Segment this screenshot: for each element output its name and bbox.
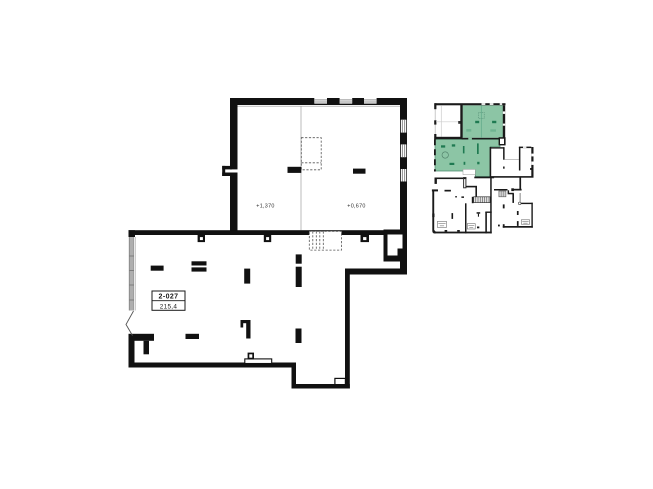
svg-text:2-027: 2-027 bbox=[159, 294, 179, 301]
svg-text:+1,370: +1,370 bbox=[256, 204, 274, 210]
svg-text:+0,670: +0,670 bbox=[347, 204, 365, 210]
svg-text:215,4: 215,4 bbox=[160, 303, 178, 310]
